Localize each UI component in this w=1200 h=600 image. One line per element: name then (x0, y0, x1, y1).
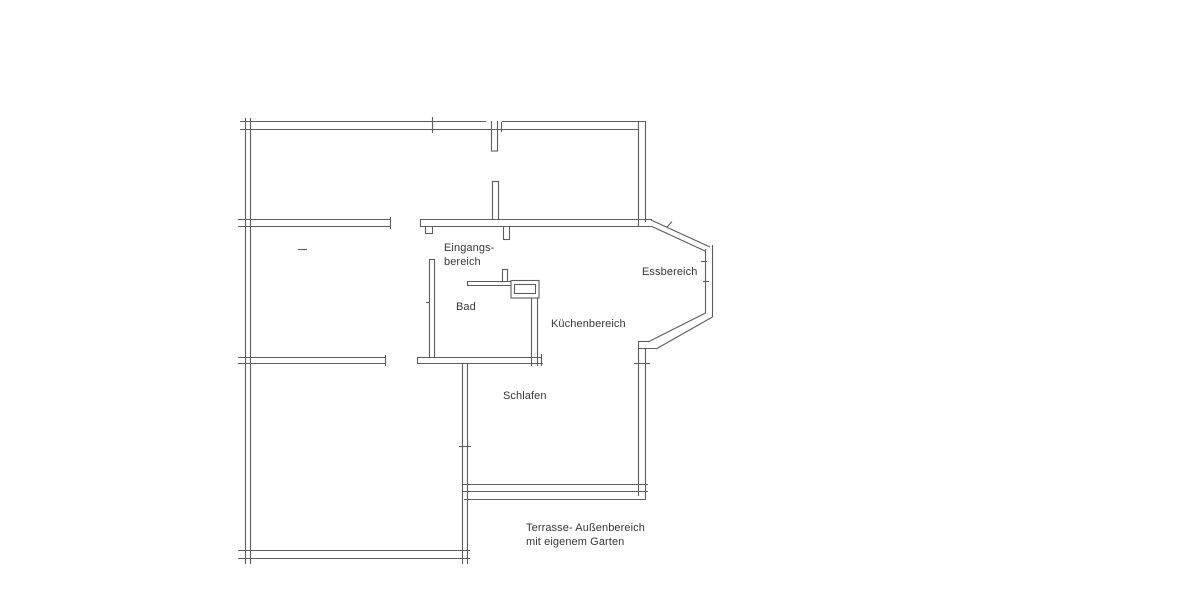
room-label-kitchen-line1: Küchenbereich (551, 317, 626, 331)
room-label-terrace-line1: Terrasse- Außenbereich (526, 521, 645, 535)
bay-window-wall (638, 220, 713, 349)
room-label-sleeping-line1: Schlafen (503, 389, 547, 403)
room-label-bathroom: Bad (456, 300, 476, 314)
room-label-bathroom-line1: Bad (456, 300, 476, 314)
bathroom-right-wall (532, 298, 538, 366)
room-label-entrance-line1: Eingangs- (444, 241, 494, 255)
sleeping-right-wall (634, 341, 650, 496)
hall-wall (238, 217, 652, 234)
entry-door-recess (491, 121, 502, 151)
sleeping-left-wall (459, 363, 471, 564)
room-label-dining-line1: Essbereich (642, 265, 697, 279)
upper-right-wall (639, 121, 646, 226)
left-wall (246, 118, 251, 564)
floorplan-drawing (0, 0, 1200, 600)
bathroom-fixture (467, 269, 539, 298)
room-label-entrance-line2: bereich (444, 255, 494, 269)
hall-wall-stub-lower (503, 227, 510, 240)
room-label-sleeping: Schlafen (503, 389, 547, 403)
room-label-dining: Essbereich (642, 265, 697, 279)
sleeping-bottom-wall (462, 485, 648, 501)
middle-wall (238, 354, 543, 366)
bathroom-left-wall (426, 259, 435, 357)
room-label-kitchen: Küchenbereich (551, 317, 626, 331)
top-wall (240, 117, 646, 133)
room-label-entrance: Eingangs- bereich (444, 241, 494, 269)
room-label-terrace-line2: mit eigenem Garten (526, 535, 645, 549)
floorplan-canvas: Eingangs- bereich Bad Küchenbereich Essb… (0, 0, 1200, 600)
bottom-wall (238, 551, 470, 559)
room-label-terrace: Terrasse- Außenbereich mit eigenem Garte… (526, 521, 645, 549)
hall-wall-stub-upper (492, 181, 499, 219)
